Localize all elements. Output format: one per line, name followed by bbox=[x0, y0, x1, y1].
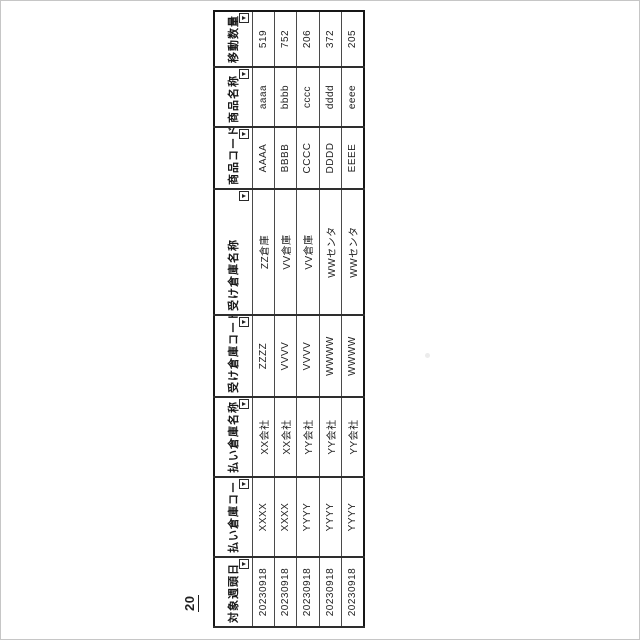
filter-dropdown-icon[interactable] bbox=[239, 399, 249, 409]
figure-number: 20 bbox=[183, 595, 199, 612]
table-cell: EEEE bbox=[342, 127, 364, 189]
table-cell: dddd bbox=[319, 67, 341, 127]
table-cell: WWWW bbox=[319, 315, 341, 397]
filter-dropdown-icon[interactable] bbox=[239, 129, 249, 139]
filter-dropdown-icon[interactable] bbox=[239, 69, 249, 79]
column-header-label: 受け倉庫名称 bbox=[228, 239, 240, 311]
table-cell: 752 bbox=[274, 11, 296, 67]
table-row: 20230918 XXXX XX会社 ZZZZ ZZ倉庫 AAAA aaaa 5… bbox=[252, 11, 274, 627]
table-cell: 20230918 bbox=[342, 557, 364, 627]
column-header-target-week-start-date: 対象週頭日 bbox=[214, 557, 252, 627]
filter-dropdown-icon[interactable] bbox=[239, 479, 249, 489]
table-cell: YYYY bbox=[342, 477, 364, 557]
table-row: 20230918 YYYY YY会社 VVVV VV倉庫 CCCC cccc 2… bbox=[297, 11, 319, 627]
table-header-row: 対象週頭日 払い倉庫コード 払い倉庫名称 受け倉庫コード 受け倉庫名称 bbox=[214, 11, 252, 627]
table-cell: XXXX bbox=[274, 477, 296, 557]
column-header-product-code: 商品コード bbox=[214, 127, 252, 189]
table-cell: ZZ倉庫 bbox=[252, 189, 274, 315]
column-header-receiving-warehouse-code: 受け倉庫コード bbox=[214, 315, 252, 397]
filter-dropdown-icon[interactable] bbox=[239, 317, 249, 327]
table-cell: VVVV bbox=[274, 315, 296, 397]
table-cell: CCCC bbox=[297, 127, 319, 189]
table-cell: 205 bbox=[342, 11, 364, 67]
table-cell: DDDD bbox=[319, 127, 341, 189]
rotated-sheet: 20 対象週頭日 払い倉庫コード 払い倉庫名称 bbox=[213, 12, 363, 628]
column-header-receiving-warehouse-name: 受け倉庫名称 bbox=[214, 189, 252, 315]
table-cell: eeee bbox=[342, 67, 364, 127]
table-cell: cccc bbox=[297, 67, 319, 127]
table-row: 20230918 YYYY YY会社 WWWW WWセンタ EEEE eeee … bbox=[342, 11, 364, 627]
table-cell: VVVV bbox=[297, 315, 319, 397]
table-cell: ZZZZ bbox=[252, 315, 274, 397]
table-cell: XX会社 bbox=[274, 397, 296, 477]
column-header-label: 払い倉庫名称 bbox=[228, 401, 240, 473]
table-cell: BBBB bbox=[274, 127, 296, 189]
column-header-source-warehouse-code: 払い倉庫コード bbox=[214, 477, 252, 557]
scan-artifact bbox=[425, 353, 430, 358]
table-cell: 20230918 bbox=[274, 557, 296, 627]
table-cell: 519 bbox=[252, 11, 274, 67]
table-cell: YY会社 bbox=[297, 397, 319, 477]
table-cell: 206 bbox=[297, 11, 319, 67]
table-cell: AAAA bbox=[252, 127, 274, 189]
table-cell: XXXX bbox=[252, 477, 274, 557]
table-cell: YY会社 bbox=[319, 397, 341, 477]
table-cell: WWセンタ bbox=[342, 189, 364, 315]
table-cell: YY会社 bbox=[342, 397, 364, 477]
column-header-move-quantity: 移動数量 bbox=[214, 11, 252, 67]
filter-dropdown-icon[interactable] bbox=[239, 13, 249, 23]
column-header-product-name: 商品名称 bbox=[214, 67, 252, 127]
table-cell: YYYY bbox=[297, 477, 319, 557]
table-cell: VV倉庫 bbox=[274, 189, 296, 315]
table-cell: VV倉庫 bbox=[297, 189, 319, 315]
column-header-label: 商品名称 bbox=[228, 75, 240, 123]
warehouse-transfer-table: 対象週頭日 払い倉庫コード 払い倉庫名称 受け倉庫コード 受け倉庫名称 bbox=[213, 10, 365, 628]
table-cell: 20230918 bbox=[252, 557, 274, 627]
table-row: 20230918 YYYY YY会社 WWWW WWセンタ DDDD dddd … bbox=[319, 11, 341, 627]
filter-dropdown-icon[interactable] bbox=[239, 559, 249, 569]
table-cell: YYYY bbox=[319, 477, 341, 557]
column-header-source-warehouse-name: 払い倉庫名称 bbox=[214, 397, 252, 477]
scanned-document-page: 20 対象週頭日 払い倉庫コード 払い倉庫名称 bbox=[0, 0, 640, 640]
column-header-label: 対象週頭日 bbox=[228, 563, 240, 623]
table-cell: 20230918 bbox=[297, 557, 319, 627]
table-cell: WWWW bbox=[342, 315, 364, 397]
filter-dropdown-icon[interactable] bbox=[239, 191, 249, 201]
table-cell: aaaa bbox=[252, 67, 274, 127]
table-cell: 372 bbox=[319, 11, 341, 67]
table-cell: 20230918 bbox=[319, 557, 341, 627]
table-cell: WWセンタ bbox=[319, 189, 341, 315]
table-row: 20230918 XXXX XX会社 VVVV VV倉庫 BBBB bbbb 7… bbox=[274, 11, 296, 627]
table-cell: bbbb bbox=[274, 67, 296, 127]
table-cell: XX会社 bbox=[252, 397, 274, 477]
